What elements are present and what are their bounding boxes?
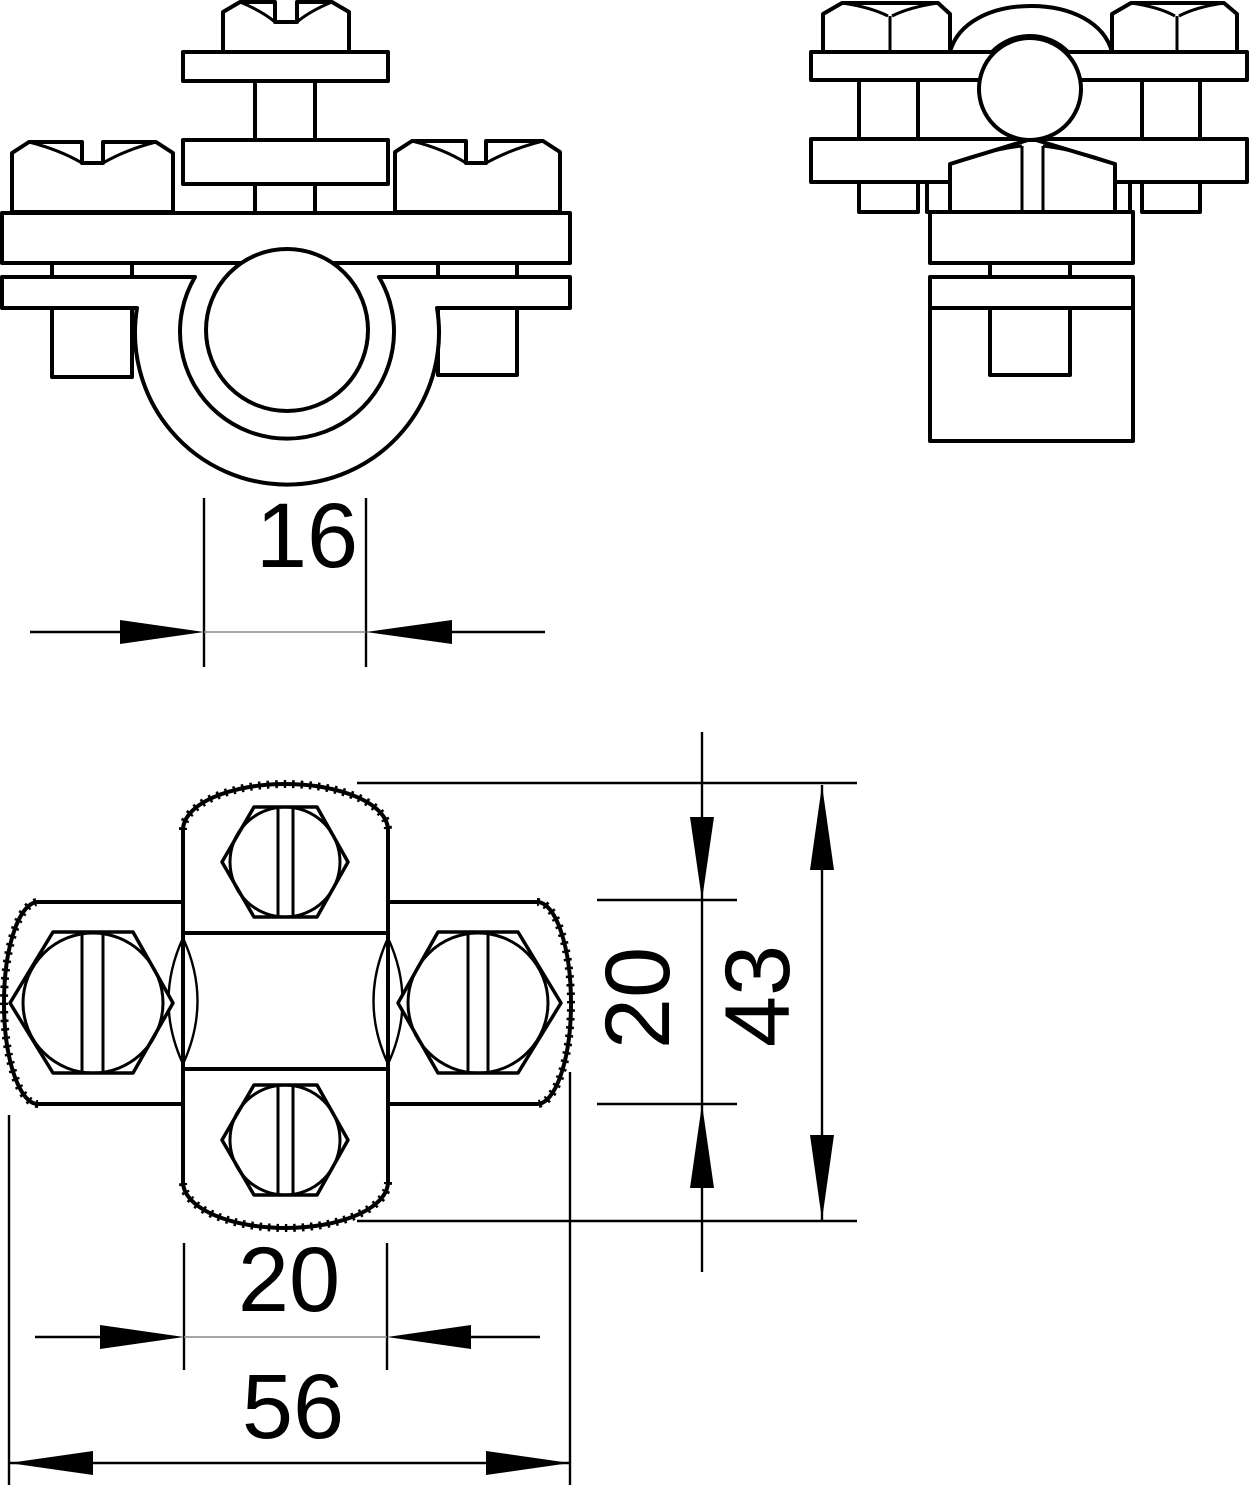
dim-text-16: 16 (256, 485, 358, 587)
side-column-notch (990, 308, 1070, 375)
center-bolt-washer (183, 52, 388, 81)
dim-text-20-bottom: 20 (238, 1229, 340, 1331)
arrowhead-down-icon (810, 1135, 834, 1220)
center-bolt-shaft-upper (255, 81, 315, 140)
side-left-bolt-head (823, 3, 950, 52)
arrowhead-right-icon (100, 1325, 184, 1349)
drawing-sheet: 16 20 43 20 56 (0, 0, 1249, 1500)
center-bolt-head (223, 2, 349, 52)
dim-text-43: 43 (707, 945, 809, 1047)
side-column-neck (990, 263, 1070, 277)
front-view (2, 2, 570, 485)
conductor-circle (206, 249, 368, 411)
dim-text-56: 56 (242, 1356, 344, 1458)
arrowhead-up-icon (810, 785, 834, 870)
side-view (811, 3, 1247, 441)
drawing-canvas: 16 20 43 20 56 (0, 0, 1249, 1500)
side-right-bolt-head (1112, 3, 1237, 52)
dimension-rod-diameter: 16 (30, 485, 545, 667)
plan-view (4, 784, 571, 1228)
arrowhead-left-icon (387, 1325, 471, 1349)
arrowhead-left-icon (366, 620, 452, 644)
dimension-bar-width: 20 (35, 1229, 540, 1370)
dim-text-20-vertical: 20 (587, 947, 689, 1049)
side-column-a (930, 212, 1133, 263)
arrowhead-right-icon (486, 1451, 570, 1475)
center-crossbar (183, 140, 388, 184)
arrowhead-left-icon (9, 1451, 93, 1475)
left-bolt-head (12, 142, 173, 212)
arrowhead-right-icon (120, 620, 204, 644)
right-bolt-head (395, 141, 560, 212)
arrowhead-down-icon (690, 817, 714, 900)
side-column-b (930, 277, 1133, 308)
arrowhead-up-icon (690, 1104, 714, 1188)
